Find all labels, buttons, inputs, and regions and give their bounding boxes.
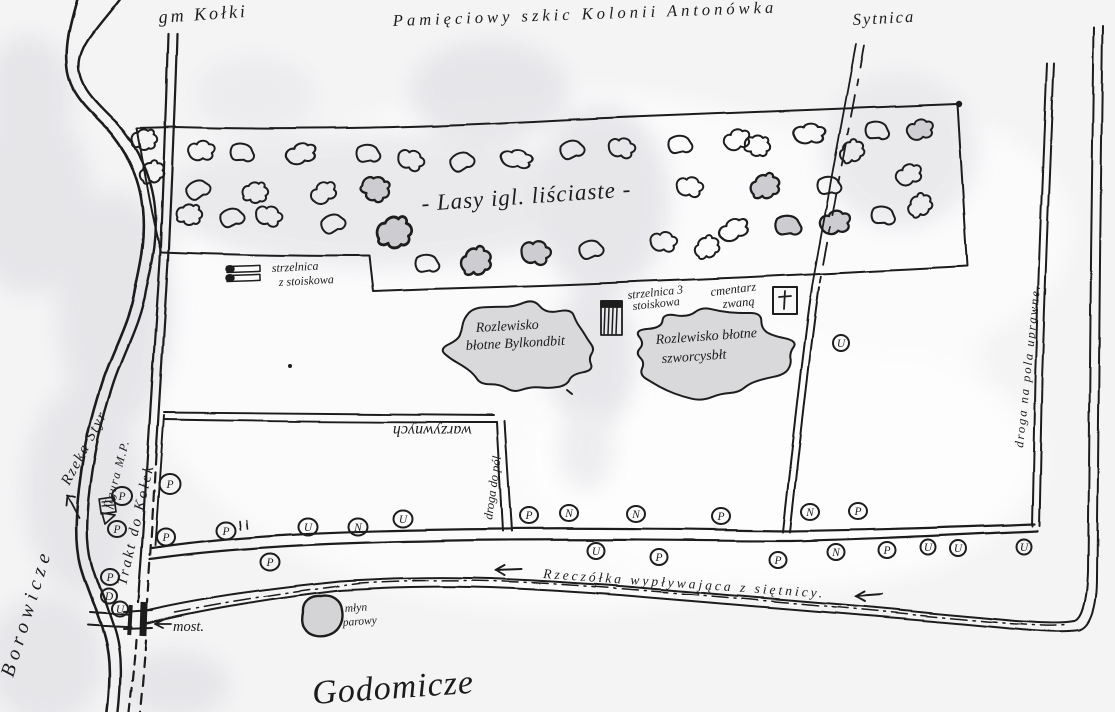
svg-text:Sytnica: Sytnica [852,7,915,29]
svg-text:parowy: parowy [341,615,378,629]
svg-text:z stoiskowa: z stoiskowa [277,272,334,289]
svg-text:N: N [564,508,574,520]
svg-text:młyn: młyn [344,601,367,615]
svg-text:P: P [773,555,781,567]
svg-text:N: N [831,547,841,559]
svg-text:zwaną: zwaną [721,294,755,311]
svg-text:P: P [161,532,169,544]
svg-text:P: P [221,526,229,538]
svg-text:U: U [954,543,963,555]
svg-text:P: P [105,572,113,584]
svg-text:P: P [654,552,662,564]
svg-text:P: P [265,557,273,569]
svg-text:N: N [805,507,815,519]
svg-text:U: U [592,546,601,558]
svg-text:U: U [837,338,846,350]
svg-text:warzywnych: warzywnych [393,422,472,439]
svg-text:D: D [104,591,114,603]
svg-text:P: P [853,506,861,518]
svg-text:P: P [524,510,532,522]
svg-text:most.: most. [173,619,204,635]
svg-text:P: P [882,545,890,557]
svg-text:U: U [116,604,125,616]
svg-text:N: N [353,522,363,534]
svg-text:U: U [924,542,933,554]
svg-text:P: P [716,511,724,523]
svg-text:U: U [304,522,313,534]
svg-text:U: U [1020,542,1029,554]
svg-text:N: N [631,509,641,521]
svg-text:P: P [112,524,120,536]
svg-text:U: U [399,514,408,526]
svg-text:P: P [117,491,125,503]
svg-text:P: P [165,479,173,491]
